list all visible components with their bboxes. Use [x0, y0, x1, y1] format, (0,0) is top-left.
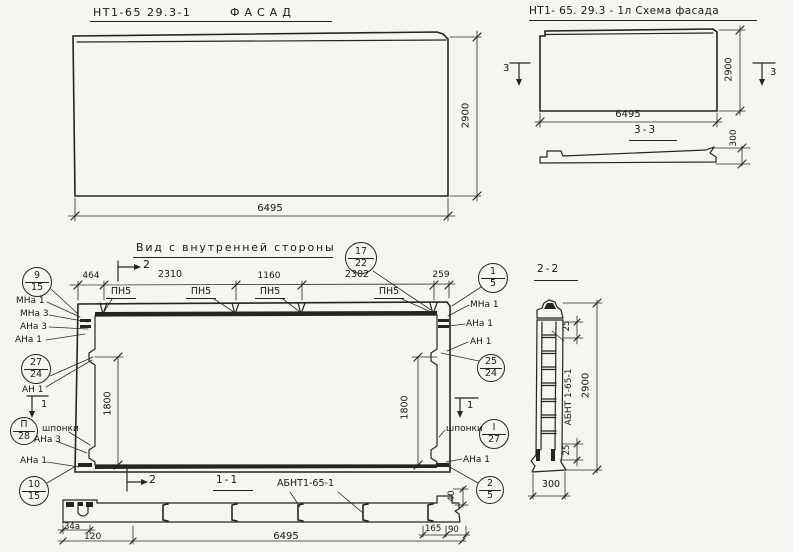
inner-label-ana3-left-low: АНа 3: [34, 435, 61, 445]
scheme-dim-thickness: 300: [729, 118, 739, 158]
facade-code: НТ1-65 29.3-1: [93, 6, 191, 19]
scheme-cut-right-label: 3: [770, 67, 776, 78]
inner-dimensions: [70, 281, 455, 469]
balloon-2-5: 25: [476, 476, 504, 504]
facade-outline: [73, 32, 448, 196]
inner-title: Вид с внутренней стороны: [136, 241, 335, 254]
section22-title: 2-2: [537, 263, 560, 275]
inner-cut1-right-label: 1: [467, 400, 473, 411]
section22-dim-height: 2900: [581, 366, 592, 406]
inner-label-ana1-right: АНа 1: [466, 319, 493, 329]
pn5-underline-3: [255, 298, 285, 299]
balloon-9-15: 915: [22, 267, 52, 297]
balloon-25-24: 2524: [477, 354, 505, 382]
inner-label-ana1-left: АНа 1: [15, 335, 42, 345]
scheme-cut-marks: [510, 63, 775, 86]
inner-cut2-bottom-label: 2: [149, 473, 156, 486]
balloon-27-24: 2724: [21, 354, 51, 384]
inner-pn5-label-4: ПН5: [375, 286, 403, 297]
balloon-17-22: 1722: [345, 242, 377, 274]
inner-outline: [75, 302, 450, 472]
section11-dim-hook: 34а: [64, 522, 80, 532]
section22-outline: [531, 300, 566, 472]
section11-outline: [63, 492, 460, 523]
balloon-10-15: 1015: [19, 476, 49, 506]
balloon-1-5: 15: [478, 263, 508, 293]
section22-title-underline: [534, 280, 578, 281]
balloon-p-28: П28: [10, 417, 38, 445]
section11-dim-120: 120: [84, 532, 101, 542]
inner-label-mna1-right: МНа 1: [470, 300, 499, 310]
blueprint-sheet: НТ1-65 29.3-1 ФАСАД 6495 2900 НТ1- 65. 2…: [0, 0, 793, 552]
balloon-i-27: I27: [479, 419, 509, 449]
inner-cut1-left-label: 1: [41, 399, 47, 410]
drawing-linework: [0, 0, 793, 552]
scheme-title-underline: [529, 20, 757, 21]
pn5-underline-1: [106, 298, 136, 299]
inner-label-ana3-left: АНа 3: [20, 322, 47, 332]
inner-label-mna3-left: МНа 3: [20, 309, 49, 319]
facade-title-underline: [90, 21, 332, 22]
inner-pn5-label-1: ПН5: [107, 286, 135, 297]
inner-dim-1800-right: 1800: [400, 388, 411, 428]
facade-dimensions: [68, 31, 481, 221]
scheme-section-title: 3-3: [634, 124, 657, 136]
inner-label-mna1-left: МНа 1: [16, 296, 45, 306]
section22-dim-bottom: 25: [562, 436, 572, 464]
scheme-title: НТ1- 65. 29.3 - 1л Схема фасада: [529, 5, 719, 17]
section11-dim-40: 40: [447, 480, 457, 512]
inner-label-an1-left: АН 1: [22, 385, 44, 395]
inner-label-ana1-right-low: АНа 1: [463, 455, 490, 465]
scheme-dim-width: 6495: [600, 109, 656, 120]
section11-part-label: АБНТ1-65-1: [277, 478, 334, 489]
pn5-underline-4: [374, 298, 404, 299]
inner-label-an1-right: АН 1: [470, 337, 492, 347]
facade-dim-height: 2900: [461, 96, 472, 136]
facade-dim-width: 6495: [240, 203, 300, 214]
section11-dim-width: 6495: [258, 531, 314, 542]
inner-dim-464: 464: [73, 271, 109, 281]
inner-dim-2310: 2310: [146, 269, 194, 280]
facade-title: ФАСАД: [230, 6, 296, 19]
inner-dim-1800-left: 1800: [103, 384, 114, 424]
inner-keys-label-right: шпонки: [446, 424, 483, 434]
section22-part-label: АБНТ 1-65-1: [564, 347, 574, 447]
inner-dim-259: 259: [424, 270, 458, 280]
section22-dim-width: 300: [537, 479, 565, 490]
scheme-section-profile: [540, 144, 750, 168]
scheme-dim-height: 2900: [724, 50, 735, 90]
section22-dim-top: 25: [562, 312, 572, 340]
inner-pn5-label-2: ПН5: [187, 286, 215, 297]
section11-title-underline: [213, 490, 253, 491]
section11-dim-90: 90: [448, 525, 459, 535]
inner-pn5-label-3: ПН5: [256, 286, 284, 297]
section11-title: 1-1: [216, 474, 239, 486]
inner-dim-1160: 1160: [247, 271, 291, 281]
scheme-section-underline: [629, 140, 677, 141]
scheme-outline: [540, 29, 717, 111]
inner-title-underline: [133, 257, 333, 258]
scheme-cut-left-label: 3: [503, 63, 509, 74]
pn5-underline-2: [186, 298, 216, 299]
section11-dim-165: 165: [425, 524, 441, 534]
inner-keys-label-left: шпонки: [42, 424, 79, 434]
inner-label-ana1-left-low: АНа 1: [20, 456, 47, 466]
